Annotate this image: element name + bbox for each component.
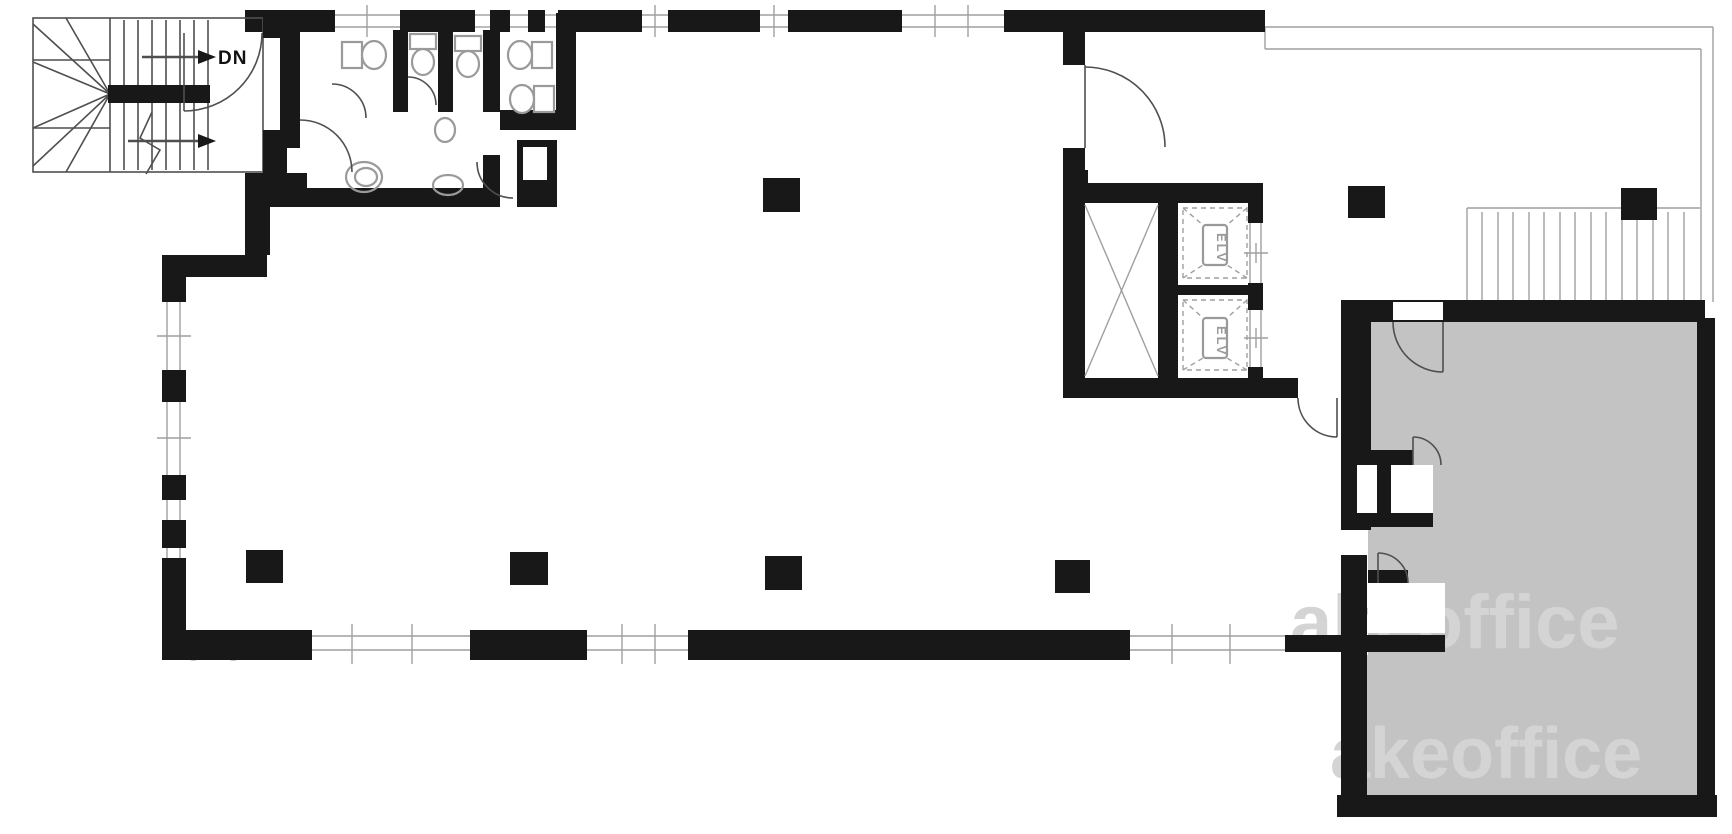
elevator-core: ELV ELV bbox=[1063, 170, 1337, 437]
floor-plan-drawing: co akeoffice akeoffice bbox=[0, 0, 1732, 834]
bottom-exterior-wall bbox=[162, 630, 1445, 660]
stair-arrow-down bbox=[128, 112, 216, 174]
toilet-icon bbox=[455, 36, 481, 77]
column bbox=[1055, 560, 1090, 593]
toilet-icon bbox=[510, 85, 554, 113]
column bbox=[1348, 186, 1385, 218]
door-arc bbox=[1298, 398, 1337, 437]
floor-plan: co akeoffice akeoffice bbox=[0, 0, 1732, 834]
left-exterior-wall bbox=[162, 255, 267, 660]
door-arc bbox=[408, 77, 436, 105]
restrooms bbox=[280, 13, 576, 207]
toilet-icon bbox=[410, 34, 436, 75]
watermark-text-middle: akeoffice bbox=[1290, 580, 1620, 665]
core-entry-wall bbox=[1063, 32, 1165, 183]
stair-arrow-up bbox=[142, 50, 216, 64]
column bbox=[763, 178, 800, 212]
toilet-icon bbox=[508, 41, 552, 69]
column bbox=[765, 556, 802, 590]
terrace-outline bbox=[1265, 27, 1713, 302]
column bbox=[246, 550, 283, 583]
sink-icon bbox=[435, 118, 455, 142]
stairwell: DN bbox=[33, 13, 300, 175]
door-arc bbox=[332, 84, 366, 118]
stair-landing-wall bbox=[108, 85, 210, 103]
toilet-icon bbox=[342, 41, 386, 69]
exterior-stair bbox=[1467, 208, 1700, 300]
elevator-shaft-x bbox=[1085, 205, 1158, 376]
door-arc bbox=[300, 120, 352, 172]
elv-label-2: ELV bbox=[1214, 326, 1229, 356]
elevator-cab-1: ELV bbox=[1183, 208, 1247, 278]
column bbox=[1621, 188, 1657, 220]
stair-connector-walls bbox=[245, 173, 307, 255]
dn-label: DN bbox=[218, 48, 247, 69]
column bbox=[510, 552, 548, 585]
watermark-text-bottom: akeoffice bbox=[1330, 714, 1642, 794]
window-band-left bbox=[157, 302, 191, 558]
top-exterior-wall bbox=[245, 10, 1265, 32]
elevator-cab-2: ELV bbox=[1183, 300, 1247, 370]
door-arc bbox=[1085, 65, 1165, 148]
elv-label-1: ELV bbox=[1214, 233, 1229, 263]
